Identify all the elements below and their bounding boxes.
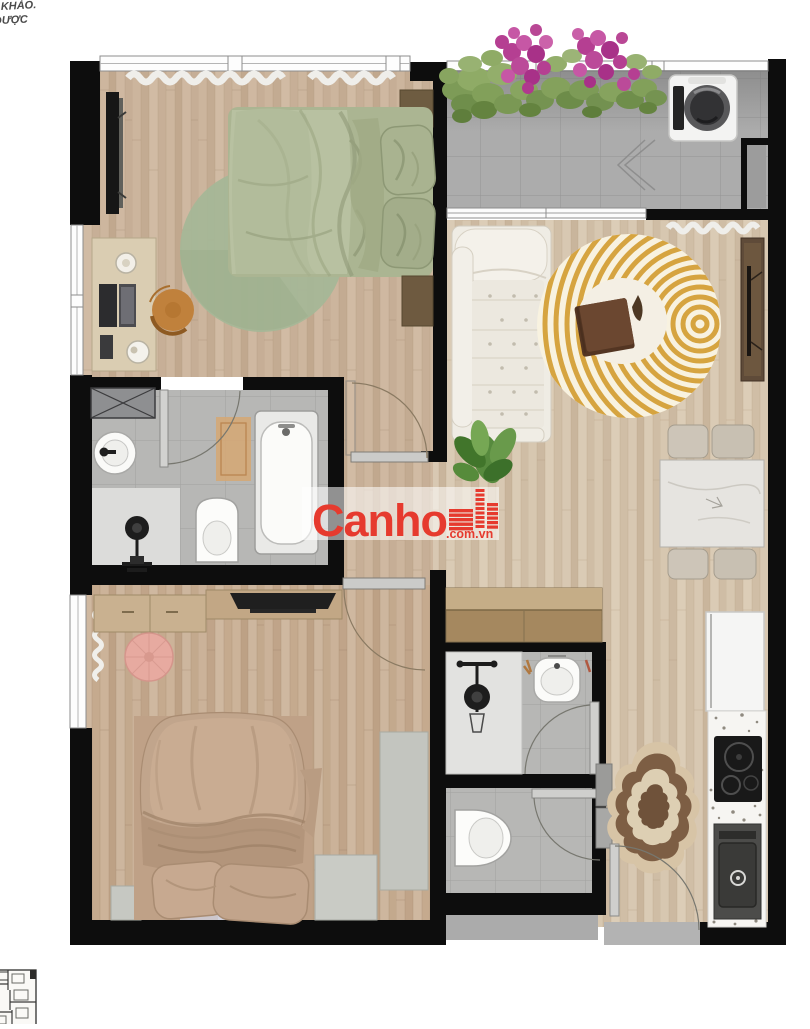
svg-text:KHẢO.: KHẢO. bbox=[0, 0, 36, 13]
svg-text:Canho: Canho bbox=[312, 495, 447, 546]
svg-text:ĐƯỢC: ĐƯỢC bbox=[0, 13, 29, 27]
svg-text:.com.vn: .com.vn bbox=[446, 527, 493, 541]
